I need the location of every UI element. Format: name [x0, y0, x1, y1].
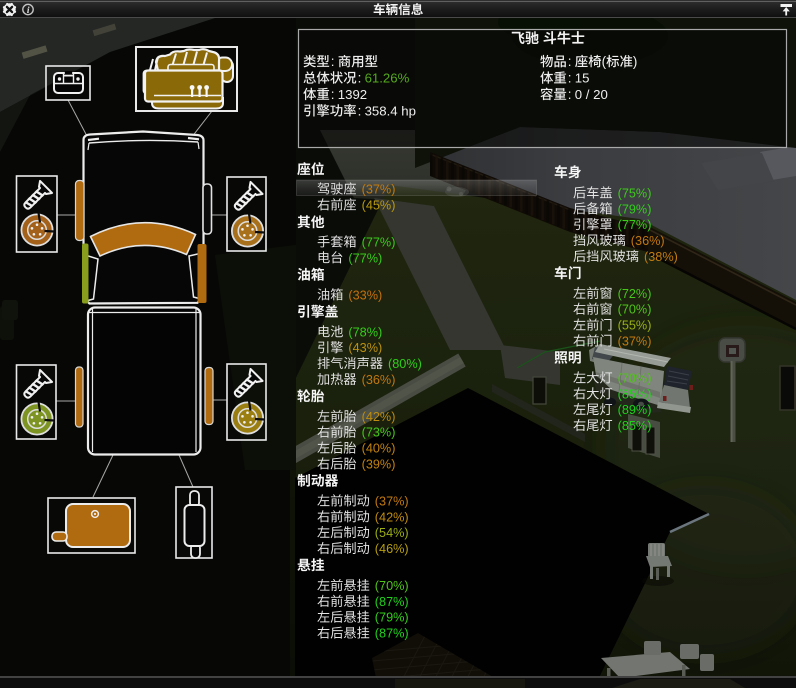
svg-text::: :: [331, 87, 335, 102]
svg-text:(37%): (37%): [362, 183, 396, 197]
svg-text::: :: [568, 87, 572, 102]
svg-text::: :: [568, 54, 572, 69]
svg-text:(79%): (79%): [375, 611, 409, 625]
svg-text:(70%): (70%): [375, 579, 409, 593]
svg-text:1392: 1392: [338, 87, 367, 102]
svg-text:(36%): (36%): [362, 373, 396, 387]
svg-text:(54%): (54%): [375, 526, 409, 540]
svg-text:(77%): (77%): [362, 235, 396, 249]
svg-text:(45%): (45%): [362, 198, 396, 212]
svg-text:i: i: [27, 6, 30, 16]
svg-text:(36%): (36%): [631, 234, 665, 248]
svg-text:(77%): (77%): [348, 251, 382, 265]
svg-text:(39%): (39%): [362, 457, 396, 471]
svg-text:(40%): (40%): [362, 442, 396, 456]
svg-text::: :: [358, 103, 362, 118]
svg-text:(77%): (77%): [618, 218, 652, 232]
svg-text:(37%): (37%): [618, 334, 652, 348]
svg-text:(70%): (70%): [618, 303, 652, 317]
svg-text::: :: [331, 54, 335, 69]
svg-text:(85%): (85%): [618, 387, 652, 401]
svg-text:(87%): (87%): [375, 627, 409, 641]
svg-text::: :: [568, 71, 572, 86]
svg-text:(89%): (89%): [618, 403, 652, 417]
svg-text::: :: [358, 71, 362, 86]
svg-text:(70%): (70%): [618, 371, 652, 385]
svg-text:0 / 20: 0 / 20: [575, 87, 608, 102]
svg-text:358.4 hp: 358.4 hp: [365, 103, 416, 118]
svg-text:(: (: [602, 54, 607, 69]
svg-text:(42%): (42%): [375, 510, 409, 524]
svg-text:(79%): (79%): [618, 202, 652, 216]
svg-text:): ): [633, 54, 637, 69]
svg-text:(87%): (87%): [375, 595, 409, 609]
svg-text:15: 15: [575, 71, 590, 86]
svg-text:(33%): (33%): [348, 288, 382, 302]
svg-text:(80%): (80%): [388, 357, 422, 371]
svg-text:(72%): (72%): [618, 287, 652, 301]
svg-text:(42%): (42%): [362, 410, 396, 424]
svg-text:(37%): (37%): [375, 494, 409, 508]
svg-text:(73%): (73%): [362, 426, 396, 440]
svg-text:(75%): (75%): [618, 186, 652, 200]
svg-text:(43%): (43%): [348, 341, 382, 355]
svg-text:61.26%: 61.26%: [365, 71, 410, 86]
svg-text:(38%): (38%): [644, 250, 678, 264]
svg-text:(85%): (85%): [618, 419, 652, 433]
svg-text:(46%): (46%): [375, 542, 409, 556]
svg-text:(78%): (78%): [348, 325, 382, 339]
svg-text:(55%): (55%): [618, 319, 652, 333]
